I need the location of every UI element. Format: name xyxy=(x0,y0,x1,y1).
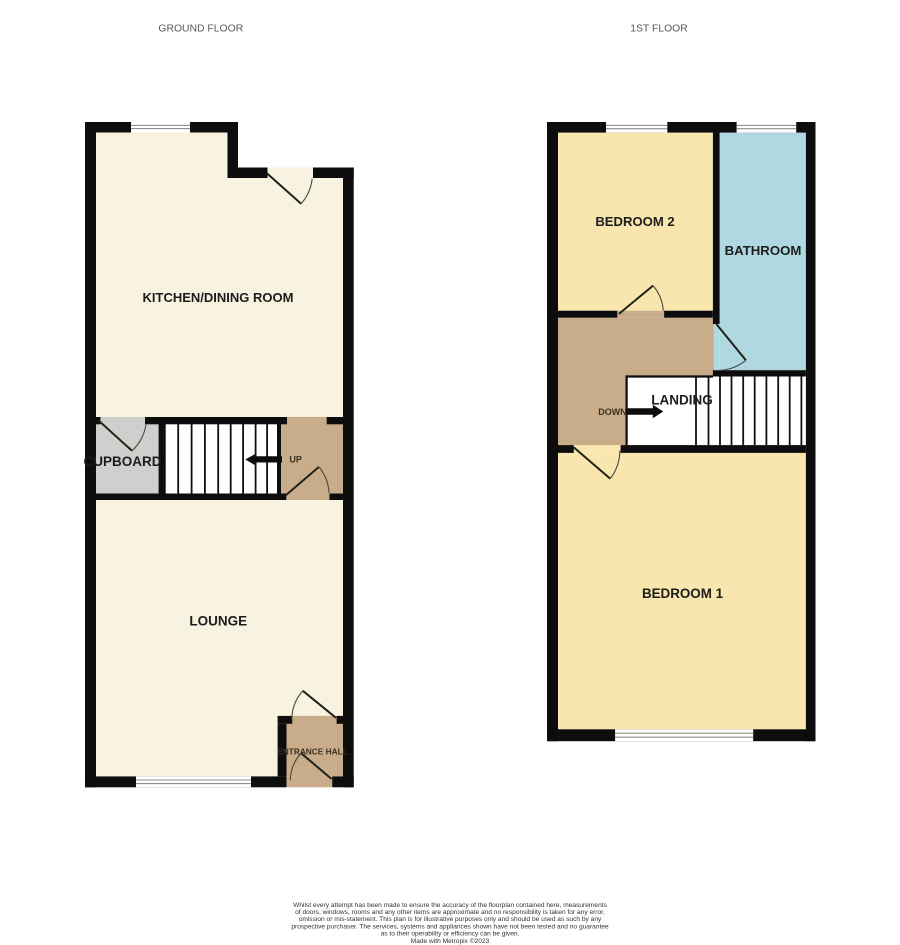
svg-text:prospective purchaser. The ser: prospective purchaser. The services, sys… xyxy=(291,923,609,930)
svg-text:omission or mis-statement. Thi: omission or mis-statement. This plan is … xyxy=(299,916,602,923)
svg-text:LANDING: LANDING xyxy=(651,393,713,408)
svg-text:of doors, windows, rooms and a: of doors, windows, rooms and any other i… xyxy=(295,909,605,916)
svg-text:UP: UP xyxy=(289,454,302,464)
svg-text:1ST FLOOR: 1ST FLOOR xyxy=(630,24,688,35)
svg-text:Whilst every attempt has been: Whilst every attempt has been made to en… xyxy=(293,902,607,909)
svg-text:BATHROOM: BATHROOM xyxy=(725,243,802,258)
svg-text:DOWN: DOWN xyxy=(598,407,627,417)
svg-text:as to their operability or eff: as to their operability or efficiency ca… xyxy=(381,931,520,938)
svg-text:BEDROOM 1: BEDROOM 1 xyxy=(642,586,724,601)
svg-text:Made with Metropix ©2023: Made with Metropix ©2023 xyxy=(411,937,490,945)
svg-text:BEDROOM 2: BEDROOM 2 xyxy=(595,214,674,229)
svg-text:KITCHEN/DINING ROOM: KITCHEN/DINING ROOM xyxy=(143,290,294,305)
svg-text:ENTRANCE HALL: ENTRANCE HALL xyxy=(277,747,348,757)
svg-text:LOUNGE: LOUNGE xyxy=(189,613,247,628)
svg-text:GROUND FLOOR: GROUND FLOOR xyxy=(158,24,243,35)
svg-text:CUPBOARD: CUPBOARD xyxy=(83,454,161,469)
